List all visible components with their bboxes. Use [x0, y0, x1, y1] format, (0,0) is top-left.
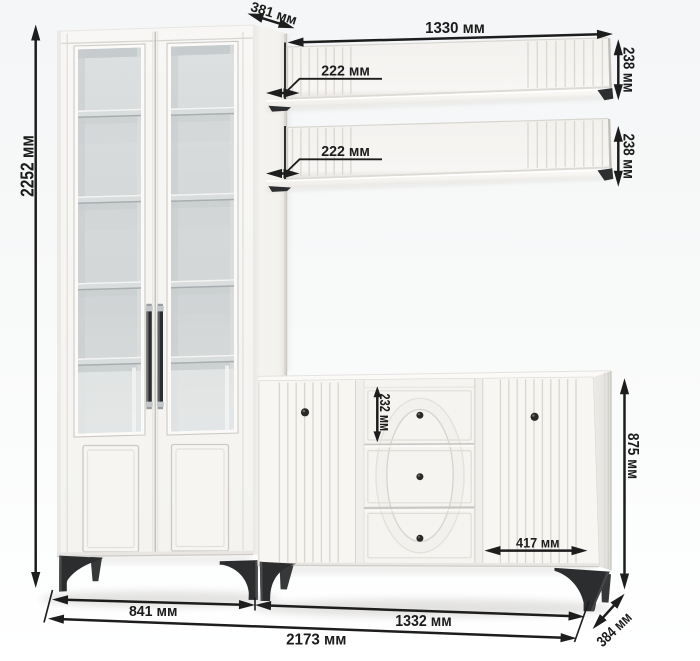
svg-text:841 мм: 841 мм	[129, 604, 178, 620]
svg-text:222 мм: 222 мм	[321, 144, 370, 160]
svg-text:232 мм: 232 мм	[376, 394, 393, 432]
svg-text:222 мм: 222 мм	[321, 64, 370, 80]
svg-text:2252 мм: 2252 мм	[17, 135, 38, 197]
svg-text:417 мм: 417 мм	[516, 535, 560, 550]
svg-text:1330 мм: 1330 мм	[425, 20, 485, 37]
svg-text:1332 мм: 1332 мм	[395, 613, 451, 630]
svg-text:238 мм: 238 мм	[620, 133, 637, 179]
svg-text:875 мм: 875 мм	[624, 433, 641, 479]
svg-text:238 мм: 238 мм	[620, 47, 637, 93]
svg-text:2173 мм: 2173 мм	[286, 631, 346, 648]
